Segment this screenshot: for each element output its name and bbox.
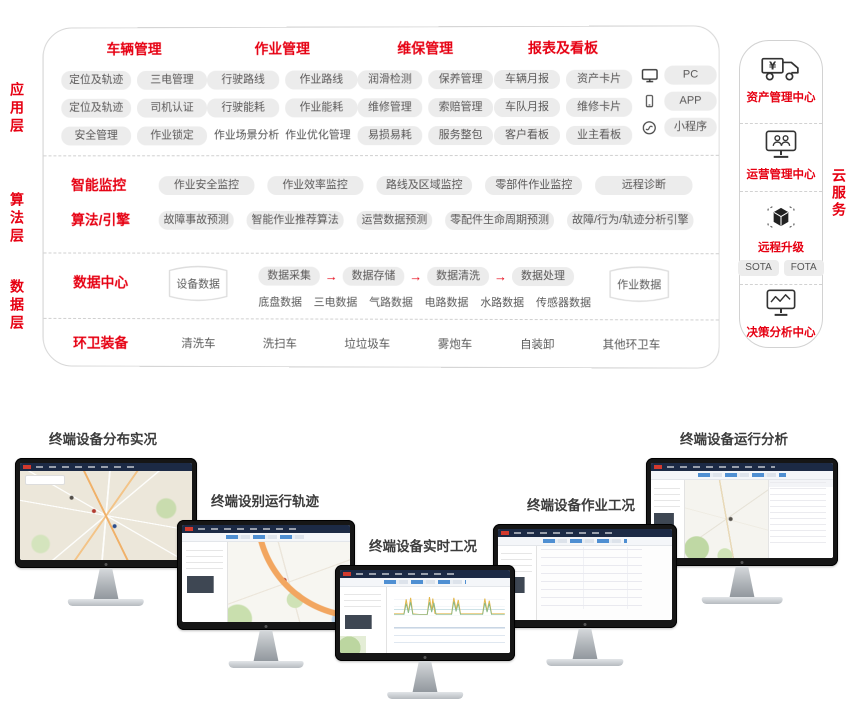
screen-toolbar xyxy=(498,537,672,546)
feature-pill: 车队月报 xyxy=(494,98,560,117)
screen-header-bar xyxy=(498,529,672,537)
algorithm-pill: 故障事故预测 xyxy=(159,210,234,229)
data-pipeline: 数据采集 数据存储 数据清洗 数据处理 xyxy=(258,267,574,286)
feature-pill: 客户看板 xyxy=(494,126,560,145)
screen-header-bar xyxy=(651,463,833,471)
platform-panel: 车辆管理 定位及轨迹三电管理 定位及轨迹司机认证 安全管理作业锁定 xyxy=(43,25,720,368)
monitor-label: 终端设备运行分析 xyxy=(680,428,788,448)
monitor-screen xyxy=(651,463,833,558)
equipment-item: 清洗车 xyxy=(181,335,215,351)
monitor-stand-neck xyxy=(88,568,124,600)
phone-icon xyxy=(640,93,658,110)
feature-pill: 作业能耗 xyxy=(285,98,357,117)
group-row: 作业场景分析作业优化管理 xyxy=(207,126,358,145)
algorithm-pill: 故障/行为/轨迹分析引擎 xyxy=(567,211,694,230)
pipeline-step: 数据处理 xyxy=(489,267,574,286)
group-rows: 润滑检测保养管理 维修管理索赔管理 易损易耗服务整包 xyxy=(358,70,493,145)
feature-pill: 行驶路线 xyxy=(207,71,279,90)
group-rows: 车辆月报资产卡片 车队月报维修卡片 客户看板业主看板 xyxy=(494,70,632,145)
algorithm-row: 智能监控 作业安全监控作业效率监控路线及区域监控零部件作业监控远程诊断 xyxy=(71,176,692,194)
algorithm-pill: 智能作业推荐算法 xyxy=(247,210,344,229)
equipment-layer: 环卫装备 清洗车洗扫车垃垃圾车雾炮车自装卸其他环卫车 xyxy=(44,318,719,368)
monitor-stand-base xyxy=(68,599,144,606)
group-row: 行驶路线作业路线 xyxy=(207,70,358,89)
feature-pill: 作业优化管理 xyxy=(285,126,350,145)
monitor-frame xyxy=(493,524,677,628)
screen-sidebar xyxy=(340,587,387,653)
equipment-item: 其他环卫车 xyxy=(603,336,661,352)
terminal-row: 小程序 xyxy=(640,119,716,136)
algorithm-row-title: 智能监控 xyxy=(71,175,146,195)
algorithm-pill: 零部件作业监控 xyxy=(485,175,582,194)
algorithm-pill: 作业效率监控 xyxy=(267,176,363,195)
algorithm-row: 算法/引擎 故障事故预测智能作业推荐算法运营数据预测零配件生命周期预测故障/行为… xyxy=(71,211,692,229)
job-data-label: 作业数据 xyxy=(606,262,672,306)
algorithm-pills: 作业安全监控作业效率监控路线及区域监控零部件作业监控远程诊断 xyxy=(146,175,693,194)
screen-main xyxy=(228,542,350,622)
terminal-list: PC APP 小程序 xyxy=(640,66,716,135)
screen-header-bar xyxy=(340,570,510,578)
pipeline-pill: 数据采集 xyxy=(258,267,319,286)
monitor: 终端设备作业工况 xyxy=(493,524,677,628)
equipment-item: 自装卸 xyxy=(520,336,555,352)
group-row: 车队月报维修卡片 xyxy=(494,98,632,117)
cloud-rail-item: ¥ xyxy=(740,123,822,191)
algorithm-pills: 故障事故预测智能作业推荐算法运营数据预测零配件生命周期预测故障/行为/轨迹分析引… xyxy=(146,210,694,229)
feature-pill: 行驶能耗 xyxy=(207,98,279,117)
screen-main xyxy=(537,546,672,620)
svg-text:¥: ¥ xyxy=(769,61,777,73)
ota-tag: FOTA xyxy=(784,260,824,276)
data-type: 气路数据 xyxy=(369,294,413,310)
feature-pill: 润滑检测 xyxy=(358,70,423,89)
layer-label-algorithm: 算法层 xyxy=(7,192,27,246)
pipeline-step: 数据清洗 xyxy=(404,267,489,286)
monitor-stand-base xyxy=(702,597,783,604)
mini-icon xyxy=(640,119,658,135)
device-data-cylinder: 设备数据 xyxy=(166,262,231,306)
algorithm-pill: 运营数据预测 xyxy=(357,210,433,229)
monitor: 终端设备实时工况 xyxy=(335,565,515,661)
data-center-title: 数据中心 xyxy=(73,272,128,292)
feature-group: 维保管理 润滑检测保养管理 维修管理索赔管理 易损易耗服务整包 xyxy=(358,27,493,145)
ota-tag: SOTA xyxy=(738,260,778,276)
feature-pill: 作业路线 xyxy=(285,70,357,89)
infographic: 应用层 算法层 数据层 车辆管理 定位及轨迹三电管理 定位及轨迹司机认 xyxy=(0,0,851,715)
monitor-screen xyxy=(20,463,192,560)
screen-body xyxy=(182,542,350,622)
group-row: 定位及轨迹三电管理 xyxy=(61,71,207,90)
monitor-frame xyxy=(177,520,355,630)
equipment-title: 环卫装备 xyxy=(73,333,128,353)
cloud-rail-title: 决策分析中心 xyxy=(747,324,816,340)
group-rows: 行驶路线作业路线 行驶能耗作业能耗 作业场景分析作业优化管理 xyxy=(207,70,358,145)
algorithm-pill: 路线及区域监控 xyxy=(376,176,472,195)
job-data-cylinder: 作业数据 xyxy=(606,262,672,306)
application-layer: 车辆管理 定位及轨迹三电管理 定位及轨迹司机认证 安全管理作业锁定 xyxy=(44,26,719,155)
algorithm-pill: 零配件生命周期预测 xyxy=(445,210,554,229)
group-row: 客户看板业主看板 xyxy=(494,126,632,145)
layer-label-data: 数据层 xyxy=(7,279,27,333)
cloud-rail-title: 远程升级 xyxy=(758,239,804,255)
feature-pill: 三电管理 xyxy=(137,71,207,90)
feature-pill: 安全管理 xyxy=(61,127,131,146)
feature-pill: 司机认证 xyxy=(137,99,207,118)
monitor-frame xyxy=(15,458,197,568)
monitor-stand-neck xyxy=(248,630,284,662)
screen-body xyxy=(340,587,510,653)
layer-label-application: 应用层 xyxy=(7,82,27,136)
terminal-row: APP xyxy=(640,93,716,110)
feature-groups: 车辆管理 定位及轨迹三电管理 定位及轨迹司机认证 安全管理作业锁定 xyxy=(44,26,719,28)
cloud-rail-item: ¥ xyxy=(740,191,822,284)
equipment-item: 垃垃圾车 xyxy=(344,336,390,352)
monitor-label: 终端设别运行轨迹 xyxy=(211,490,319,510)
terminal-pill: 小程序 xyxy=(664,118,716,137)
cloud-rail-item: ¥ xyxy=(740,284,822,346)
group-row: 维修管理索赔管理 xyxy=(358,98,493,117)
feature-pill: 维修卡片 xyxy=(566,98,632,117)
feature-pill: 作业场景分析 xyxy=(214,126,279,145)
feature-group: 报表及看板 车辆月报资产卡片 车队月报维修卡片 客户看板业主看板 xyxy=(494,27,632,145)
feature-pill: 业主看板 xyxy=(566,126,632,145)
feature-pill: 索赔管理 xyxy=(428,98,493,117)
screen-main xyxy=(20,471,192,560)
monitor: 终端设别运行轨迹 xyxy=(177,520,355,630)
algorithm-row-title: 算法/引擎 xyxy=(71,210,146,230)
pipeline-step: 数据存储 xyxy=(320,267,404,286)
algorithm-pill: 远程诊断 xyxy=(595,175,692,194)
terminal-pill: APP xyxy=(664,92,716,111)
cloud-rail-title: 资产管理中心 xyxy=(747,89,816,105)
screen-right-panel xyxy=(768,480,833,558)
screen-toolbar xyxy=(651,471,833,480)
line-chart xyxy=(394,592,505,622)
screen-main xyxy=(685,480,769,558)
feature-pill: 维修管理 xyxy=(358,98,423,117)
feature-pill: 定位及轨迹 xyxy=(61,99,131,118)
data-type: 水路数据 xyxy=(480,294,524,310)
group-title: 作业管理 xyxy=(207,38,358,54)
screen-header-bar xyxy=(182,525,350,533)
monitor-stand-base xyxy=(229,661,304,668)
monitor-label: 终端设备实时工况 xyxy=(369,535,477,555)
group-title: 车辆管理 xyxy=(61,39,207,55)
screen-body xyxy=(20,471,192,560)
monitor-frame xyxy=(335,565,515,661)
monitor-stand-neck xyxy=(567,628,603,660)
cube-icon: ¥ xyxy=(762,200,800,234)
cloud-rail-item: ¥ xyxy=(740,41,822,123)
monitor-screen xyxy=(340,570,510,653)
data-type: 三电数据 xyxy=(314,294,358,310)
feature-pill: 车辆月报 xyxy=(494,70,560,89)
group-title: 报表及看板 xyxy=(494,38,632,54)
pc-icon xyxy=(640,67,658,83)
feature-pill: 易损易耗 xyxy=(358,126,423,145)
screen-sidebar xyxy=(182,542,228,622)
data-type: 电路数据 xyxy=(425,294,469,310)
screen-toolbar xyxy=(340,578,510,587)
data-type-list: 底盘数据三电数据气路数据电路数据水路数据传感器数据 xyxy=(258,294,591,311)
group-row: 车辆月报资产卡片 xyxy=(494,70,632,89)
monitor-stand-neck xyxy=(724,566,760,598)
group-row: 易损易耗服务整包 xyxy=(358,126,493,145)
monitor: 终端设备分布实况 xyxy=(15,458,197,568)
device-data-label: 设备数据 xyxy=(166,262,231,306)
group-row: 定位及轨迹司机认证 xyxy=(61,99,207,118)
group-rows: 定位及轨迹三电管理 定位及轨迹司机认证 安全管理作业锁定 xyxy=(61,71,207,146)
monitor-users-icon: ¥ xyxy=(761,129,801,161)
feature-group: 车辆管理 定位及轨迹三电管理 定位及轨迹司机认证 安全管理作业锁定 xyxy=(61,28,207,145)
pipeline-pill: 数据处理 xyxy=(512,267,574,286)
monitor-screen xyxy=(182,525,350,622)
data-layer: 数据中心 设备数据 数据采集 数据存储 数据清洗 数据处理 底盘 xyxy=(44,252,719,319)
group-row: 润滑检测保养管理 xyxy=(358,70,493,89)
screen-header-bar xyxy=(20,463,192,471)
equipment-list: 清洗车洗扫车垃垃圾车雾炮车自装卸其他环卫车 xyxy=(181,335,660,352)
monitor-label: 终端设备作业工况 xyxy=(527,494,635,514)
cloud-service-label: 云服务 xyxy=(829,168,849,219)
monitor-label: 终端设备分布实况 xyxy=(49,428,157,448)
monitor-stand-base xyxy=(387,692,463,699)
algorithm-layer: 智能监控 作业安全监控作业效率监控路线及区域监控零部件作业监控远程诊断 算法/引… xyxy=(44,155,719,253)
group-row: 行驶能耗作业能耗 xyxy=(207,98,358,117)
pipeline-pill: 数据清洗 xyxy=(427,267,489,286)
ota-tags: SOTAFOTA xyxy=(738,260,823,276)
feature-pill: 资产卡片 xyxy=(566,70,632,89)
screen-toolbar xyxy=(182,533,350,542)
screen-main xyxy=(387,587,510,653)
monitor-screen xyxy=(498,529,672,620)
equipment-item: 雾炮车 xyxy=(438,336,472,352)
data-type: 底盘数据 xyxy=(258,294,302,310)
data-type: 传感器数据 xyxy=(536,294,591,310)
monitor-stand-neck xyxy=(407,661,443,693)
monitor-stand-base xyxy=(546,659,623,666)
group-title: 维保管理 xyxy=(358,38,493,54)
pipeline-pill: 数据存储 xyxy=(343,267,405,286)
screen-body xyxy=(651,480,833,558)
feature-pill: 保养管理 xyxy=(428,70,493,89)
monitor-chart-icon: ¥ xyxy=(761,287,801,319)
pipeline-step: 数据采集 xyxy=(258,267,319,286)
feature-pill: 作业锁定 xyxy=(137,126,207,145)
screen-body xyxy=(498,546,672,620)
truck-yen-icon: ¥ xyxy=(760,54,802,84)
group-row: 安全管理作业锁定 xyxy=(61,126,207,145)
terminal-row: PC xyxy=(640,66,716,83)
terminal-pill: PC xyxy=(664,65,716,84)
algorithm-pill: 作业安全监控 xyxy=(159,176,255,195)
feature-pill: 定位及轨迹 xyxy=(61,71,131,90)
cloud-rail-title: 运营管理中心 xyxy=(747,166,816,182)
feature-pill: 服务整包 xyxy=(428,126,493,145)
cloud-service-rail: ¥ xyxy=(739,40,823,348)
feature-group: 作业管理 行驶路线作业路线 行驶能耗作业能耗 作业场景分析作业优化管理 xyxy=(207,28,358,146)
equipment-item: 洗扫车 xyxy=(263,335,297,351)
